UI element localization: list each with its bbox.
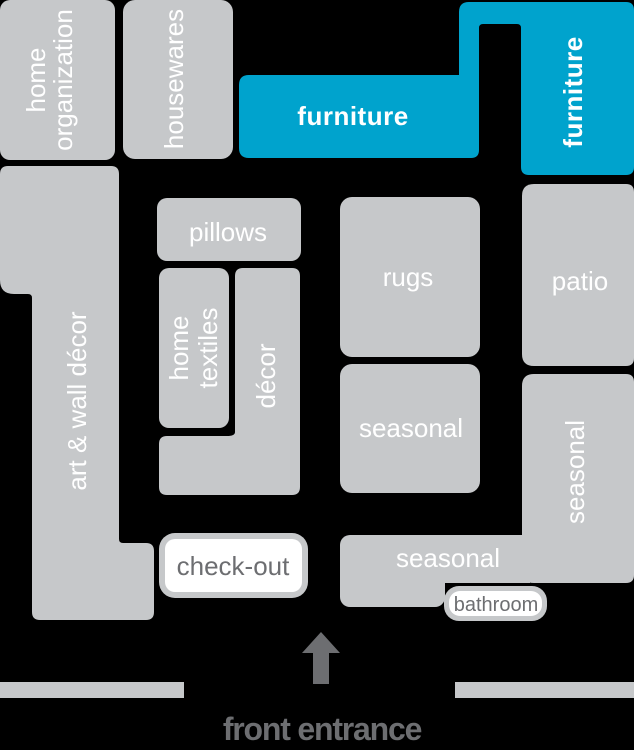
svg-text:bathroom: bathroom [454,594,539,616]
svg-text:pillows: pillows [189,217,267,247]
svg-text:seasonal: seasonal [560,420,590,524]
svg-text:art & wall décor: art & wall décor [62,311,92,491]
svg-text:hometextiles: hometextiles [164,308,223,389]
svg-text:housewares: housewares [159,9,189,149]
svg-text:décor: décor [251,343,281,408]
svg-text:seasonal: seasonal [359,413,463,443]
svg-text:rugs: rugs [383,262,434,292]
svg-text:check-out: check-out [177,551,290,581]
svg-text:seasonal: seasonal [396,543,500,573]
svg-text:front entrance: front entrance [223,711,422,747]
svg-text:furniture: furniture [297,101,408,131]
svg-text:patio: patio [552,266,608,296]
svg-text:furniture: furniture [558,36,588,147]
